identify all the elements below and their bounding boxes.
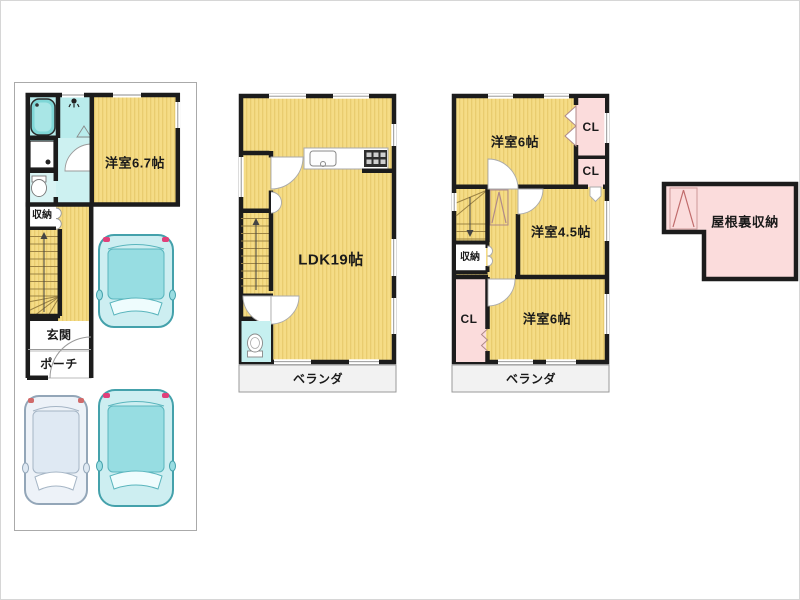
attic-outline: [664, 184, 796, 279]
attic-plan: [659, 179, 800, 285]
label-veranda-f3: ベランダ: [506, 373, 556, 385]
label-veranda-f2: ベランダ: [293, 373, 343, 385]
label-bedroom-bottom-f3: 洋室6帖: [523, 313, 571, 326]
car-icon: [97, 390, 176, 506]
car-icon: [97, 235, 176, 327]
label-bedroom-mid-f3: 洋室4.5帖: [531, 226, 591, 239]
bathtub-icon: [31, 99, 55, 135]
label-bedroom-top-f3: 洋室6帖: [491, 136, 539, 149]
label-ldk: LDK19帖: [298, 253, 364, 268]
room-bedroom-f1: [94, 97, 178, 203]
washer-pan-icon: [30, 141, 54, 168]
label-storage-f3: 収納: [460, 253, 480, 263]
floor2-plan: [238, 93, 399, 394]
label-bedroom-f1: 洋室6.7帖: [105, 157, 165, 170]
floorplan-stage: 洋室6.7帖 収納 玄関 ポーチ LDK19帖 ベランダ 洋室6帖 CL CL …: [0, 0, 800, 600]
car-icon: [23, 396, 90, 504]
label-storage-f1: 収納: [32, 211, 52, 221]
stove-icon: [364, 150, 387, 167]
label-closet-left: CL: [461, 313, 478, 325]
toilet-icon: [32, 176, 47, 197]
label-attic: 屋根裏収納: [711, 216, 779, 229]
toilet-icon: [248, 334, 263, 357]
label-closet-mid: CL: [583, 165, 600, 177]
label-entrance: 玄関: [46, 329, 71, 341]
label-porch: ポーチ: [40, 358, 78, 370]
label-closet-top: CL: [583, 121, 600, 133]
sink-icon: [310, 151, 336, 166]
floor1-plan: [14, 82, 197, 531]
kitchen-counter-icon: [304, 148, 388, 169]
